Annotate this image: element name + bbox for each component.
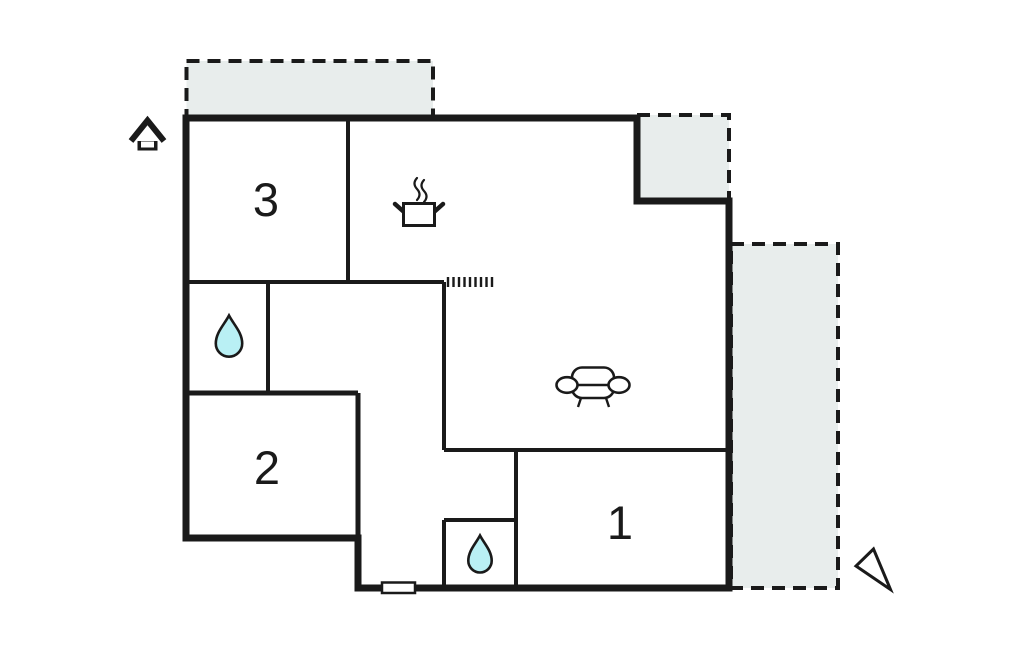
room-label-2: 2 [254, 441, 280, 494]
terrace-area-top [187, 61, 434, 118]
steam-line [415, 178, 420, 200]
terrace-area-right [731, 244, 838, 588]
opening-hatch-marks [448, 277, 492, 287]
terrace-area-top-right [637, 115, 729, 201]
north-arrow-icon [856, 549, 891, 590]
sofa-armrest-right [609, 377, 630, 393]
window-marker [382, 583, 415, 594]
pot-body [404, 204, 435, 226]
floor-plan-page: 3 2 1 [0, 0, 1024, 652]
stove-pot-icon [395, 178, 443, 226]
house-door [140, 141, 155, 149]
house-roof [131, 121, 164, 142]
water-drop-icon [216, 316, 242, 357]
sofa-icon [557, 368, 630, 408]
steam-line [422, 180, 427, 202]
sofa-legs [578, 398, 609, 407]
room-label-1: 1 [607, 496, 633, 549]
water-drop-icon [468, 536, 491, 573]
floor-plan-canvas: 3 2 1 [0, 0, 1024, 652]
sofa-armrest-left [557, 377, 578, 393]
terrace-areas [187, 61, 839, 588]
room-label-3: 3 [253, 173, 279, 226]
house-icon [131, 121, 164, 151]
